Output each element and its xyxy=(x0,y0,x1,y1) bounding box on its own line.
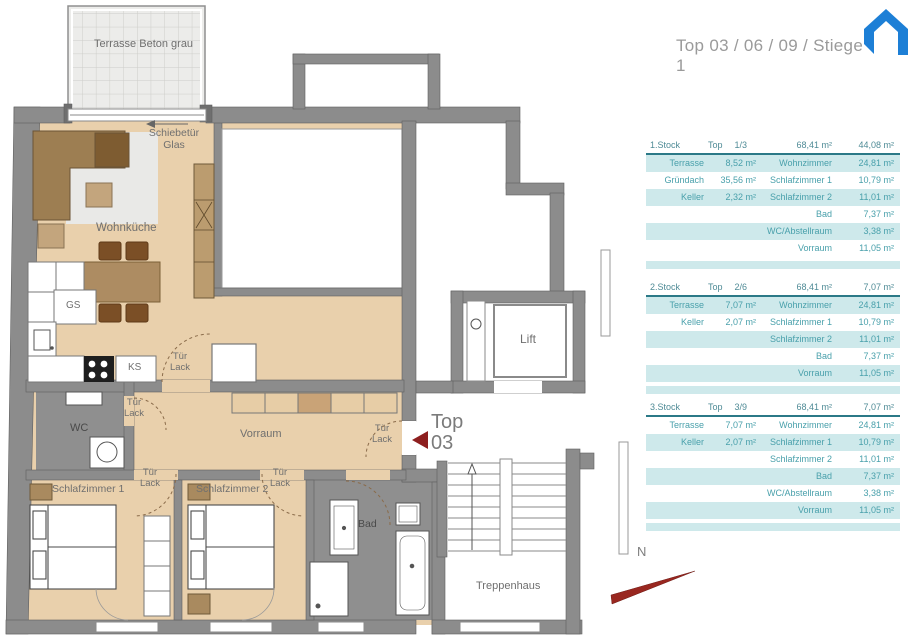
cell-av xyxy=(704,451,756,468)
cell-bv: 10,79 m² xyxy=(832,434,894,451)
tuer-line: Tür xyxy=(173,351,187,362)
cell-b: Vorraum xyxy=(756,365,832,382)
cell-bv: 24,81 m² xyxy=(832,297,894,314)
table-row: WC/Abstellraum3,38 m² xyxy=(646,485,900,502)
cell-a: Terrasse xyxy=(650,417,704,434)
cell-bv: 11,05 m² xyxy=(832,240,894,257)
cell-av: 35,56 m² xyxy=(704,172,756,189)
top-label: Top xyxy=(708,282,723,292)
cell-b: Schlafzimmer 1 xyxy=(756,434,832,451)
table-header: 1.Stock Top 1/3 68,41 m² 44,08 m² xyxy=(646,138,900,155)
cell-bv: 11,05 m² xyxy=(832,502,894,519)
label-vorraum: Vorraum xyxy=(240,428,282,441)
label-wc: WC xyxy=(70,422,88,435)
cell-av xyxy=(704,348,756,365)
label-tuer-lack-entrance: Tür Lack xyxy=(364,424,400,446)
cell-bv: 24,81 m² xyxy=(832,417,894,434)
cell-b: Bad xyxy=(756,348,832,365)
table-row: WC/Abstellraum3,38 m² xyxy=(646,223,900,240)
cell-av xyxy=(704,365,756,382)
cell-b: Wohnzimmer xyxy=(756,417,832,434)
shaft xyxy=(212,344,256,382)
lack-line: Lack xyxy=(124,408,144,419)
compass-n-label: N xyxy=(637,544,646,559)
label-ks: KS xyxy=(128,362,141,374)
label-top03-line2: 03 xyxy=(431,432,453,454)
cell-av xyxy=(704,331,756,348)
label-schiebetuer-line1: Schiebetür xyxy=(149,127,199,139)
cell-a xyxy=(650,206,704,223)
top-cell: Top 3/9 xyxy=(708,402,764,412)
cell-bv: 7,37 m² xyxy=(832,468,894,485)
cell-b: WC/Abstellraum xyxy=(756,223,832,240)
cell-bv: 11,01 m² xyxy=(832,331,894,348)
cell-a xyxy=(650,502,704,519)
floor-cell: 2.Stock xyxy=(650,282,708,292)
tuer-line: Tür xyxy=(143,467,157,478)
cell-bv: 24,81 m² xyxy=(832,155,894,172)
cell-a xyxy=(650,331,704,348)
cell-av xyxy=(704,223,756,240)
cell-b: Bad xyxy=(756,468,832,485)
cell-b: Schlafzimmer 2 xyxy=(756,451,832,468)
bed-2 xyxy=(188,505,274,589)
compass-needle-icon xyxy=(611,571,695,604)
cell-a: Keller xyxy=(650,314,704,331)
cell-b: Schlafzimmer 1 xyxy=(756,314,832,331)
label-gs: GS xyxy=(66,300,80,312)
terrace xyxy=(68,6,205,114)
table-row: Terrasse8,52 m²Wohnzimmer24,81 m² xyxy=(646,155,900,172)
label-bad: Bad xyxy=(358,518,377,530)
cell-av xyxy=(704,502,756,519)
cell-av xyxy=(704,240,756,257)
wardrobe-bedroom1 xyxy=(144,516,170,616)
table-row: Terrasse7,07 m²Wohnzimmer24,81 m² xyxy=(646,297,900,314)
table-row: Vorraum11,05 m² xyxy=(646,240,900,257)
cell-a xyxy=(650,365,704,382)
label-tuer-lack-sz2: Tür Lack xyxy=(262,468,298,490)
cell-b: Schlafzimmer 1 xyxy=(756,172,832,189)
table-footer-strip xyxy=(646,261,900,269)
label-schlafzimmer2: Schlafzimmer 2 xyxy=(196,483,268,495)
table-row: Bad7,37 m² xyxy=(646,468,900,485)
cell-bv: 10,79 m² xyxy=(832,314,894,331)
cell-b: Wohnzimmer xyxy=(756,155,832,172)
cell-a xyxy=(650,468,704,485)
cell-bv: 11,05 m² xyxy=(832,365,894,382)
total-living-cell: 68,41 m² xyxy=(764,140,832,150)
table-row: Keller2,32 m²Schlafzimmer 211,01 m² xyxy=(646,189,900,206)
top-value: 1/3 xyxy=(735,140,748,150)
cell-a: Keller xyxy=(650,189,704,206)
label-top03: Top 03 xyxy=(431,412,463,454)
tuer-line: Tür xyxy=(375,423,389,434)
cell-av xyxy=(704,206,756,223)
house-logo-icon xyxy=(858,3,914,57)
area-table-floor3: 3.Stock Top 3/9 68,41 m² 7,07 m² Terrass… xyxy=(646,400,900,531)
label-lift: Lift xyxy=(520,333,536,347)
label-tuer-lack-sz1: Tür Lack xyxy=(132,468,168,490)
table-row: Schlafzimmer 211,01 m² xyxy=(646,331,900,348)
side-table xyxy=(38,224,64,248)
cell-av xyxy=(704,485,756,502)
table-row: Vorraum11,05 m² xyxy=(646,502,900,519)
cell-bv: 10,79 m² xyxy=(832,172,894,189)
cell-av: 7,07 m² xyxy=(704,297,756,314)
lack-line: Lack xyxy=(372,434,392,445)
lack-line: Lack xyxy=(270,478,290,489)
cell-a xyxy=(650,240,704,257)
table-row: Keller2,07 m²Schlafzimmer 110,79 m² xyxy=(646,434,900,451)
cell-b: Bad xyxy=(756,206,832,223)
cell-a: Gründach xyxy=(650,172,704,189)
tuer-line: Tür xyxy=(273,467,287,478)
table-header: 3.Stock Top 3/9 68,41 m² 7,07 m² xyxy=(646,400,900,417)
top-value: 2/6 xyxy=(735,282,748,292)
table-row: Bad7,37 m² xyxy=(646,206,900,223)
top-label: Top xyxy=(708,140,723,150)
cell-bv: 7,37 m² xyxy=(832,206,894,223)
bed-1 xyxy=(30,505,116,589)
total-extra-cell: 44,08 m² xyxy=(832,140,894,150)
cell-bv: 7,37 m² xyxy=(832,348,894,365)
label-schlafzimmer1: Schlafzimmer 1 xyxy=(52,483,124,495)
total-extra-cell: 7,07 m² xyxy=(832,282,894,292)
cell-b: Wohnzimmer xyxy=(756,297,832,314)
floor-cell: 1.Stock xyxy=(650,140,708,150)
cell-av: 2,32 m² xyxy=(704,189,756,206)
table-row: Gründach35,56 m²Schlafzimmer 110,79 m² xyxy=(646,172,900,189)
top-cell: Top 2/6 xyxy=(708,282,764,292)
nightstand xyxy=(30,484,52,500)
label-terrasse: Terrasse Beton grau xyxy=(94,38,193,51)
total-extra-cell: 7,07 m² xyxy=(832,402,894,412)
lack-line: Lack xyxy=(140,478,160,489)
lift xyxy=(467,301,566,381)
label-tuer-lack-wc: Tür Lack xyxy=(116,398,152,420)
label-treppenhaus: Treppenhaus xyxy=(476,580,540,593)
coffee-table xyxy=(86,183,112,207)
tall-wardrobe xyxy=(194,164,214,298)
label-schiebetuer: Schiebetür Glas xyxy=(144,127,204,151)
total-living-cell: 68,41 m² xyxy=(764,402,832,412)
floor-cell: 3.Stock xyxy=(650,402,708,412)
cell-av: 7,07 m² xyxy=(704,417,756,434)
label-tuer-lack-kitchen: Tür Lack xyxy=(162,352,198,374)
table-header: 2.Stock Top 2/6 68,41 m² 7,07 m² xyxy=(646,280,900,297)
nightstand xyxy=(188,594,210,614)
table-row: Bad7,37 m² xyxy=(646,348,900,365)
floorplan-page: Terrasse Beton grau Schiebetür Glas Wohn… xyxy=(0,0,920,642)
cell-a xyxy=(650,223,704,240)
cell-a: Keller xyxy=(650,434,704,451)
cell-av: 2,07 m² xyxy=(704,314,756,331)
cell-bv: 3,38 m² xyxy=(832,223,894,240)
table-row: Vorraum11,05 m² xyxy=(646,365,900,382)
cell-bv: 11,01 m² xyxy=(832,189,894,206)
stove xyxy=(84,356,114,382)
top-value: 3/9 xyxy=(735,402,748,412)
cell-a xyxy=(650,485,704,502)
cell-bv: 11,01 m² xyxy=(832,451,894,468)
cell-av: 2,07 m² xyxy=(704,434,756,451)
table-row: Schlafzimmer 211,01 m² xyxy=(646,451,900,468)
label-schiebetuer-line2: Glas xyxy=(163,139,185,151)
cell-a xyxy=(650,451,704,468)
hall-closets xyxy=(232,393,397,413)
cell-b: Vorraum xyxy=(756,502,832,519)
cell-a: Terrasse xyxy=(650,297,704,314)
total-living-cell: 68,41 m² xyxy=(764,282,832,292)
cell-b: Schlafzimmer 2 xyxy=(756,189,832,206)
cell-a xyxy=(650,348,704,365)
page-title: Top 03 / 06 / 09 / Stiege 1 xyxy=(676,36,876,76)
cell-av: 8,52 m² xyxy=(704,155,756,172)
label-wohnkueche: Wohnküche xyxy=(96,222,157,235)
lack-line: Lack xyxy=(170,362,190,373)
cell-b: Vorraum xyxy=(756,240,832,257)
top-label: Top xyxy=(708,402,723,412)
tuer-line: Tür xyxy=(127,397,141,408)
cell-av xyxy=(704,468,756,485)
label-top03-line1: Top xyxy=(431,411,463,433)
table-row: Terrasse7,07 m²Wohnzimmer24,81 m² xyxy=(646,417,900,434)
lightwell-void xyxy=(214,121,406,296)
top-cell: Top 1/3 xyxy=(708,140,764,150)
area-table-floor1: 1.Stock Top 1/3 68,41 m² 44,08 m² Terras… xyxy=(646,138,900,269)
table-row: Keller2,07 m²Schlafzimmer 110,79 m² xyxy=(646,314,900,331)
area-table-floor2: 2.Stock Top 2/6 68,41 m² 7,07 m² Terrass… xyxy=(646,280,900,394)
table-footer-strip xyxy=(646,386,900,394)
table-footer-strip xyxy=(646,523,900,531)
cell-b: Schlafzimmer 2 xyxy=(756,331,832,348)
cell-bv: 3,38 m² xyxy=(832,485,894,502)
cell-a: Terrasse xyxy=(650,155,704,172)
cell-b: WC/Abstellraum xyxy=(756,485,832,502)
